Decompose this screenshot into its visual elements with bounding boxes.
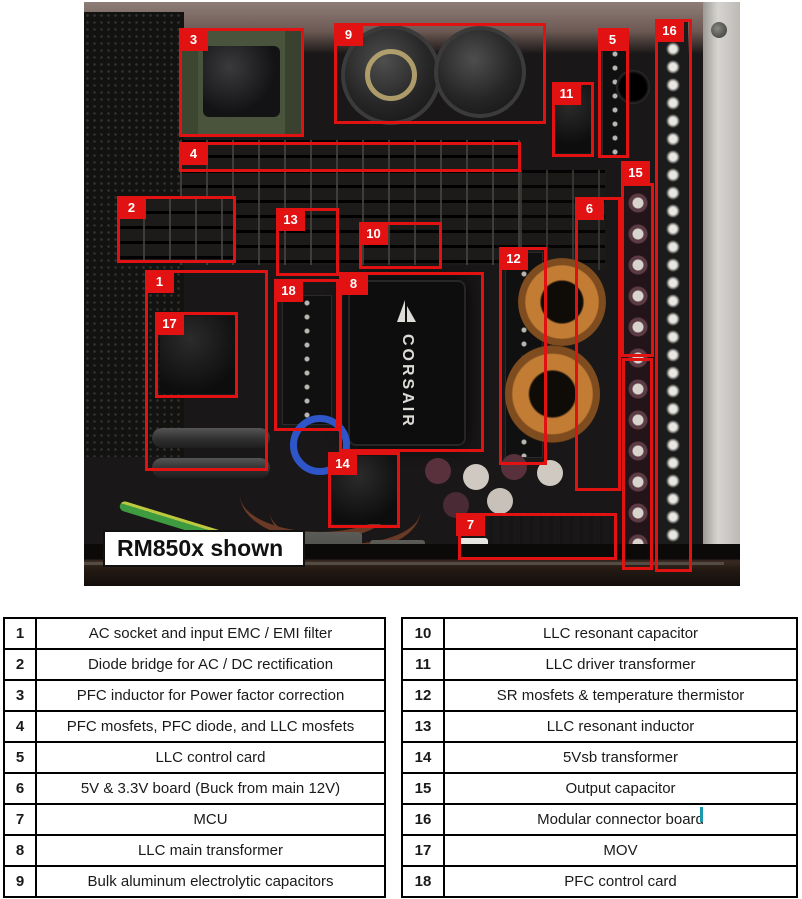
row-description: LLC control card <box>36 742 385 773</box>
row-number: 5 <box>4 742 36 773</box>
callout-label-16: 16 <box>655 19 684 42</box>
row-description: 5V & 3.3V board (Buck from main 12V) <box>36 773 385 804</box>
callout-box-9 <box>334 23 546 124</box>
row-description: MCU <box>36 804 385 835</box>
table-row: 1AC socket and input EMC / EMI filter <box>4 618 385 649</box>
row-description: 5Vsb transformer <box>444 742 797 773</box>
callout-label-3: 3 <box>179 28 208 51</box>
row-number: 1 <box>4 618 36 649</box>
text-cursor-artifact <box>700 807 703 822</box>
table-row: 65V & 3.3V board (Buck from main 12V) <box>4 773 385 804</box>
callout-label-15: 15 <box>621 161 650 184</box>
legend-table-right: 10LLC resonant capacitor11LLC driver tra… <box>401 617 798 898</box>
table-row: 11LLC driver transformer <box>402 649 797 680</box>
row-number: 15 <box>402 773 444 804</box>
callout-box-12 <box>499 247 547 465</box>
callout-label-5: 5 <box>598 28 627 51</box>
row-number: 12 <box>402 680 444 711</box>
callout-box-8 <box>339 272 484 452</box>
table-row: 8LLC main transformer <box>4 835 385 866</box>
callout-label-13: 13 <box>276 208 305 231</box>
row-description: Modular connector board <box>444 804 797 835</box>
small-capacitor-cluster <box>425 458 451 484</box>
row-description: PFC inductor for Power factor correction <box>36 680 385 711</box>
row-description: MOV <box>444 835 797 866</box>
row-number: 14 <box>402 742 444 773</box>
row-number: 9 <box>4 866 36 897</box>
table-row: 13LLC resonant inductor <box>402 711 797 742</box>
row-number: 10 <box>402 618 444 649</box>
callout-label-18: 18 <box>274 279 303 302</box>
row-number: 3 <box>4 680 36 711</box>
callout-box-4 <box>179 142 521 172</box>
table-row: 5LLC control card <box>4 742 385 773</box>
callout-box-15 <box>621 183 654 357</box>
callout-label-17: 17 <box>155 312 184 335</box>
row-description: Bulk aluminum electrolytic capacitors <box>36 866 385 897</box>
callout-label-10: 10 <box>359 222 388 245</box>
row-description: LLC resonant capacitor <box>444 618 797 649</box>
table-row: 145Vsb transformer <box>402 742 797 773</box>
row-number: 7 <box>4 804 36 835</box>
table-row: 18PFC control card <box>402 866 797 897</box>
legend-table-left: 1AC socket and input EMC / EMI filter2Di… <box>3 617 386 898</box>
callout-label-2: 2 <box>117 196 146 219</box>
row-description: LLC main transformer <box>36 835 385 866</box>
table-row: 3PFC inductor for Power factor correctio… <box>4 680 385 711</box>
row-number: 4 <box>4 711 36 742</box>
table-row: 9Bulk aluminum electrolytic capacitors <box>4 866 385 897</box>
chassis-screw-top <box>711 22 727 38</box>
callout-label-7: 7 <box>456 513 485 536</box>
row-number: 16 <box>402 804 444 835</box>
row-number: 11 <box>402 649 444 680</box>
callout-box-6 <box>575 197 621 491</box>
row-description: SR mosfets & temperature thermistor <box>444 680 797 711</box>
callout-box-16 <box>655 19 692 572</box>
callout-label-4: 4 <box>179 142 208 165</box>
callout-label-12: 12 <box>499 247 528 270</box>
row-number: 17 <box>402 835 444 866</box>
caption-label: RM850x shown <box>103 530 305 567</box>
table-row: 7MCU <box>4 804 385 835</box>
callout-label-14: 14 <box>328 452 357 475</box>
table-row: 16Modular connector board <box>402 804 797 835</box>
row-number: 2 <box>4 649 36 680</box>
row-description: Diode bridge for AC / DC rectification <box>36 649 385 680</box>
callout-label-9: 9 <box>334 23 363 46</box>
row-description: LLC resonant inductor <box>444 711 797 742</box>
row-number: 18 <box>402 866 444 897</box>
callout-box-extra-1 <box>622 358 653 570</box>
callout-label-1: 1 <box>145 270 174 293</box>
chassis-rail <box>703 2 740 586</box>
page: CORSAIR 123456789101112131415161718 RM85… <box>0 0 802 899</box>
table-row: 10LLC resonant capacitor <box>402 618 797 649</box>
callout-label-8: 8 <box>339 272 368 295</box>
row-description: PFC mosfets, PFC diode, and LLC mosfets <box>36 711 385 742</box>
table-row: 4PFC mosfets, PFC diode, and LLC mosfets <box>4 711 385 742</box>
row-description: Output capacitor <box>444 773 797 804</box>
table-row: 2Diode bridge for AC / DC rectification <box>4 649 385 680</box>
row-number: 8 <box>4 835 36 866</box>
table-row: 17MOV <box>402 835 797 866</box>
row-description: LLC driver transformer <box>444 649 797 680</box>
callout-label-6: 6 <box>575 197 604 220</box>
table-row: 12SR mosfets & temperature thermistor <box>402 680 797 711</box>
row-number: 6 <box>4 773 36 804</box>
row-description: AC socket and input EMC / EMI filter <box>36 618 385 649</box>
row-description: PFC control card <box>444 866 797 897</box>
table-row: 15Output capacitor <box>402 773 797 804</box>
row-number: 13 <box>402 711 444 742</box>
callout-label-11: 11 <box>552 82 581 105</box>
